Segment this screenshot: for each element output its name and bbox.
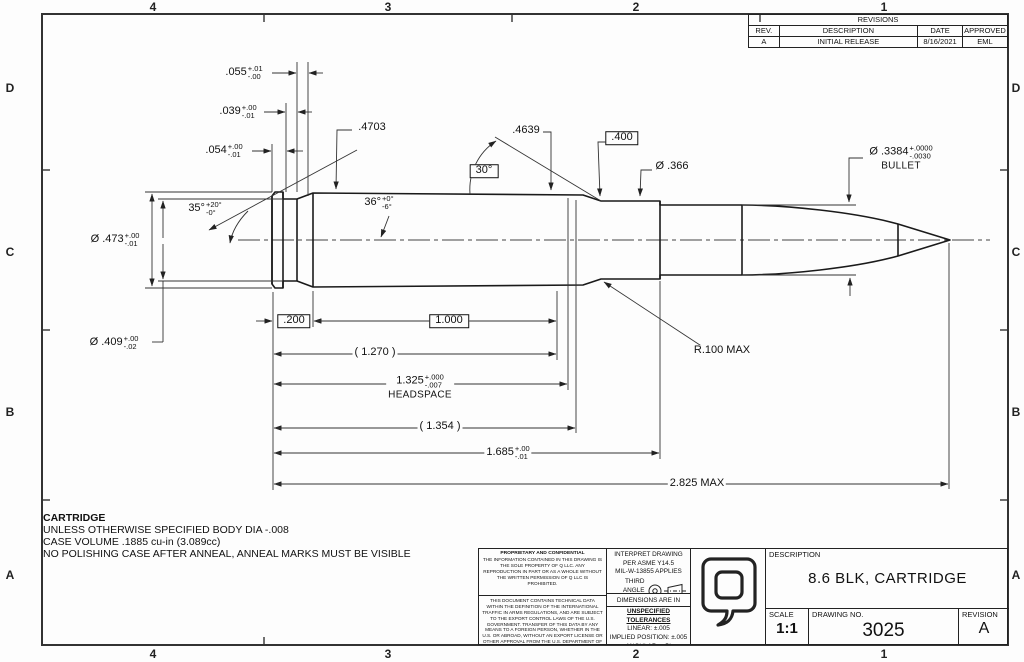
revision-value: A: [959, 620, 1009, 638]
revision-row-date: 8/16/2021: [918, 37, 963, 48]
dim-shoulder-dia-4639: .4639: [510, 125, 542, 137]
description-col-header: DESCRIPTION: [779, 26, 917, 37]
general-notes: CARTRIDGE UNLESS OTHERWISE SPECIFIED BOD…: [43, 512, 411, 560]
zone-bottom-3: 3: [385, 647, 392, 661]
dim-bullet-dia-3384: Ø .3384 +.0000-.0030 BULLET: [867, 145, 934, 172]
revision-row-description: INITIAL RELEASE: [779, 37, 917, 48]
revision-row-approved: EML: [963, 37, 1008, 48]
dim-rim-thickness: .055 +.01-.00: [223, 65, 264, 82]
dim-ref-1270: ( 1.270 ): [353, 347, 398, 359]
dim-body-dia-4703: .4703: [356, 122, 388, 134]
zone-top-2: 2: [633, 0, 640, 14]
dim-extractor-width: .054 +.00-.01: [203, 143, 244, 160]
dim-groove-width: .039 +.00-.01: [217, 104, 258, 121]
dim-groove-dia-409: Ø .409 +.00-.02: [88, 335, 141, 352]
revisions-title: REVISIONS: [749, 15, 1008, 26]
proprietary-body: THE INFORMATION CONTAINED IN THIS DRAWIN…: [483, 557, 602, 586]
interpret-cell: INTERPRET DRAWING PER ASME Y14.5 MIL-W-1…: [607, 549, 691, 594]
description-label: DESCRIPTION: [766, 549, 1009, 560]
zone-left-c: C: [6, 245, 15, 259]
scale-value: 1:1: [766, 620, 808, 637]
dim-radius-r100: R.100 MAX: [692, 345, 752, 357]
zone-right-b: B: [1012, 405, 1021, 419]
zone-left-b: B: [6, 405, 15, 419]
dim-rim-dia-473: Ø .473 +.00-.01: [89, 232, 142, 249]
dim-case-length-1685: 1.685 +.00-.01: [484, 445, 531, 462]
dim-mouth-dia-366: Ø .366: [653, 161, 690, 173]
tolerances-cell: UNSPECIFIED TOLERANCES LINEAR: ±.005 IMP…: [607, 607, 691, 644]
dim-basic-1000: 1.000: [429, 314, 469, 328]
description-value: 8.6 BLK, CARTRIDGE: [766, 570, 1009, 587]
notes-title: CARTRIDGE: [43, 512, 411, 524]
tolerance-angular: ANGULAR: ±.5°: [607, 643, 690, 644]
interpret-line: PER ASME Y14.5: [607, 560, 690, 569]
zone-left-d: D: [6, 81, 15, 95]
zone-right-a: A: [1012, 568, 1021, 582]
dim-taper-angle-36: 36° +0°-6°: [362, 195, 395, 212]
dim-bevel-angle-35: 35° +20°-0°: [186, 201, 223, 218]
revisions-table: REVISIONS REV. DESCRIPTION DATE APPROVED…: [748, 14, 1008, 48]
q-logo: [691, 549, 766, 644]
revision-label: REVISION: [959, 609, 1009, 620]
dim-shoulder-angle-30: 30°: [470, 164, 499, 178]
itar-body: THIS DOCUMENT CONTAINS TECHNICAL DATA WI…: [482, 598, 603, 644]
dim-overall-length-2825: 2.825 MAX: [668, 478, 726, 490]
description-cell: DESCRIPTION 8.6 BLK, CARTRIDGE: [766, 549, 1009, 609]
zone-right-c: C: [1012, 245, 1021, 259]
dim-headspace-1325: 1.325 +.000-.007 HEADSPACE: [386, 374, 454, 401]
zone-bottom-1: 1: [881, 647, 888, 661]
scale-label: SCALE: [766, 609, 808, 620]
drawing-number-cell: DRAWING NO. 3025: [809, 609, 959, 644]
scale-cell: SCALE 1:1: [766, 609, 809, 644]
units-cell: DIMENSIONS ARE IN INCHES: [607, 594, 691, 607]
dim-basic-200: .200: [277, 314, 310, 328]
third-angle-projection-icon: [647, 583, 687, 594]
zone-right-d: D: [1012, 81, 1021, 95]
drawing-sheet: 4 3 2 1 4 3 2 1 D C B A D C B A .055 +.0…: [0, 0, 1024, 662]
note-line: NO POLISHING CASE AFTER ANNEAL, ANNEAL M…: [43, 548, 411, 560]
dim-ref-1354: ( 1.354 ): [418, 421, 463, 433]
zone-top-3: 3: [385, 0, 392, 14]
itar-notice: THIS DOCUMENT CONTAINS TECHNICAL DATA WI…: [479, 596, 607, 644]
note-line: UNLESS OTHERWISE SPECIFIED BODY DIA -.00…: [43, 524, 411, 536]
note-line: CASE VOLUME .1885 cu-in (3.089cc): [43, 536, 411, 548]
approved-col-header: APPROVED: [963, 26, 1008, 37]
zone-left-a: A: [6, 568, 15, 582]
tolerance-position: IMPLIED POSITION: ±.005: [607, 634, 690, 643]
projection-label: THIRD ANGLE PROJECTION: [611, 578, 645, 594]
zone-top-1: 1: [881, 0, 888, 14]
tolerances-title: UNSPECIFIED TOLERANCES: [607, 608, 690, 625]
zone-bottom-4: 4: [150, 647, 157, 661]
tolerance-linear: LINEAR: ±.005: [607, 625, 690, 634]
units-note: DIMENSIONS ARE IN INCHES: [617, 597, 680, 607]
dim-neck-dia-400: .400: [605, 131, 638, 145]
zone-bottom-2: 2: [633, 647, 640, 661]
company-logo-cell: [691, 549, 766, 644]
zone-top-4: 4: [150, 0, 157, 14]
drawing-number-label: DRAWING NO.: [809, 609, 958, 620]
interpret-line: INTERPRET DRAWING: [607, 551, 690, 560]
dimension-lines: [145, 62, 949, 490]
revision-row: A INITIAL RELEASE 8/16/2021 EML: [749, 37, 1008, 48]
rev-col-header: REV.: [749, 26, 780, 37]
drawing-number-value: 3025: [809, 620, 958, 642]
title-block: PROPRIETARY AND CONFIDENTIAL THE INFORMA…: [478, 548, 1008, 645]
revision-row-rev: A: [749, 37, 780, 48]
proprietary-notice: PROPRIETARY AND CONFIDENTIAL THE INFORMA…: [479, 549, 607, 596]
interpret-line: MIL-W-13855 APPLIES: [607, 568, 690, 577]
revision-cell: REVISION A: [959, 609, 1009, 644]
date-col-header: DATE: [918, 26, 963, 37]
